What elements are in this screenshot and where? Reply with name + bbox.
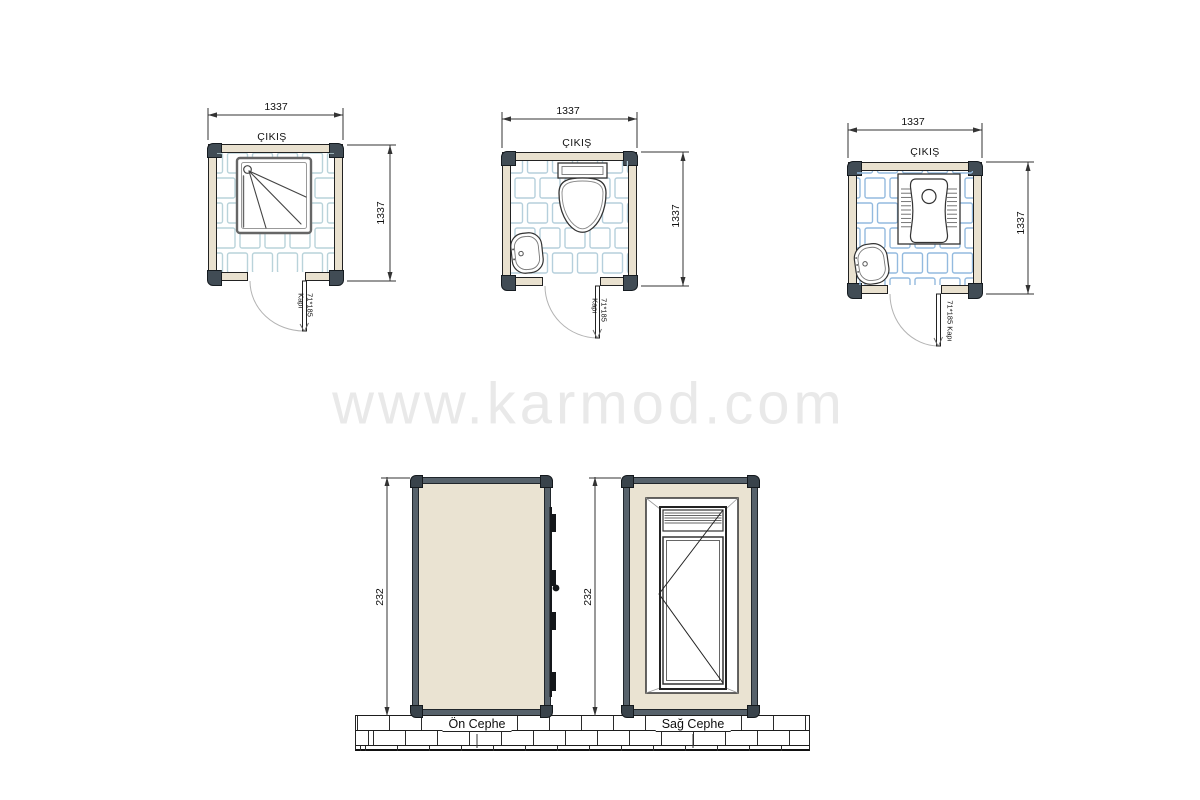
floor [217,153,334,272]
wall-right [973,162,982,294]
door-word: Kapı [296,293,305,317]
brick-row [356,715,809,730]
door-size: 71*185 [305,293,314,317]
width-dimension-label: 1337 [556,105,579,117]
corner-post [329,270,344,286]
corner-post [501,275,516,291]
height-dimension-label: 1337 [375,201,387,224]
width-dimension-label: 1337 [264,101,287,113]
corner-post [968,283,983,299]
height-dimension-label: 232 [582,588,594,606]
brick-row [356,730,809,745]
exit-label: ÇIKIŞ [257,131,286,143]
frame-corner [540,475,553,488]
elevation-caption-front: Ön Cephe [443,716,512,732]
brick-row [356,745,809,751]
corner-post [623,151,638,166]
door-word: Kapı [590,298,599,322]
frame-corner [747,475,760,488]
exit-label: ÇIKIŞ [910,146,939,158]
ground-brick-strip [355,715,810,751]
facade-panel [418,483,545,710]
height-dimension-label: 1337 [1015,211,1027,234]
frame-corner [747,705,760,718]
technical-drawing-canvas: www.karmod.com 1337 1337 ÇIKIŞ 71*185 Ka… [0,0,1200,800]
wall-left [848,162,857,294]
floor [857,171,973,285]
corner-post [329,143,344,158]
corner-post [847,283,862,299]
frame-corner [410,705,423,718]
wall-right [334,144,343,281]
wall-right [628,152,637,286]
frame-corner [621,705,634,718]
wall-left [208,144,217,281]
door-size: 71*185 [599,298,608,322]
door-knob [553,585,560,592]
frame-right [544,477,551,716]
door-size-label: 71*185 Kapı [945,300,954,341]
height-dimension-label: 232 [374,588,386,606]
frame-right [751,477,758,716]
frame-top [412,477,551,484]
frame-corner [410,475,423,488]
wall-top [502,152,637,161]
frame-top [623,477,758,484]
width-dimension-label: 1337 [901,116,924,128]
corner-post [623,275,638,291]
frame-left [412,477,419,716]
door-size-label: 71*185 Kapı [590,298,607,322]
floor [511,161,628,277]
corner-post [207,270,222,286]
wall-top [848,162,982,171]
wall-top [208,144,343,153]
frame-left [623,477,630,716]
corner-post [968,161,983,176]
frame-corner [621,475,634,488]
corner-post [207,143,222,158]
corner-post [847,161,862,176]
wall-left [502,152,511,286]
frame-corner [540,705,553,718]
facade-panel [629,483,752,710]
height-dimension-label: 1337 [670,204,682,227]
door-swing [890,294,943,346]
watermark: www.karmod.com [332,371,846,438]
door-size-label: 71*185 Kapı [296,293,313,317]
corner-post [501,151,516,166]
exit-label: ÇIKIŞ [562,137,591,149]
elevation-caption-right: Sağ Cephe [656,716,731,732]
